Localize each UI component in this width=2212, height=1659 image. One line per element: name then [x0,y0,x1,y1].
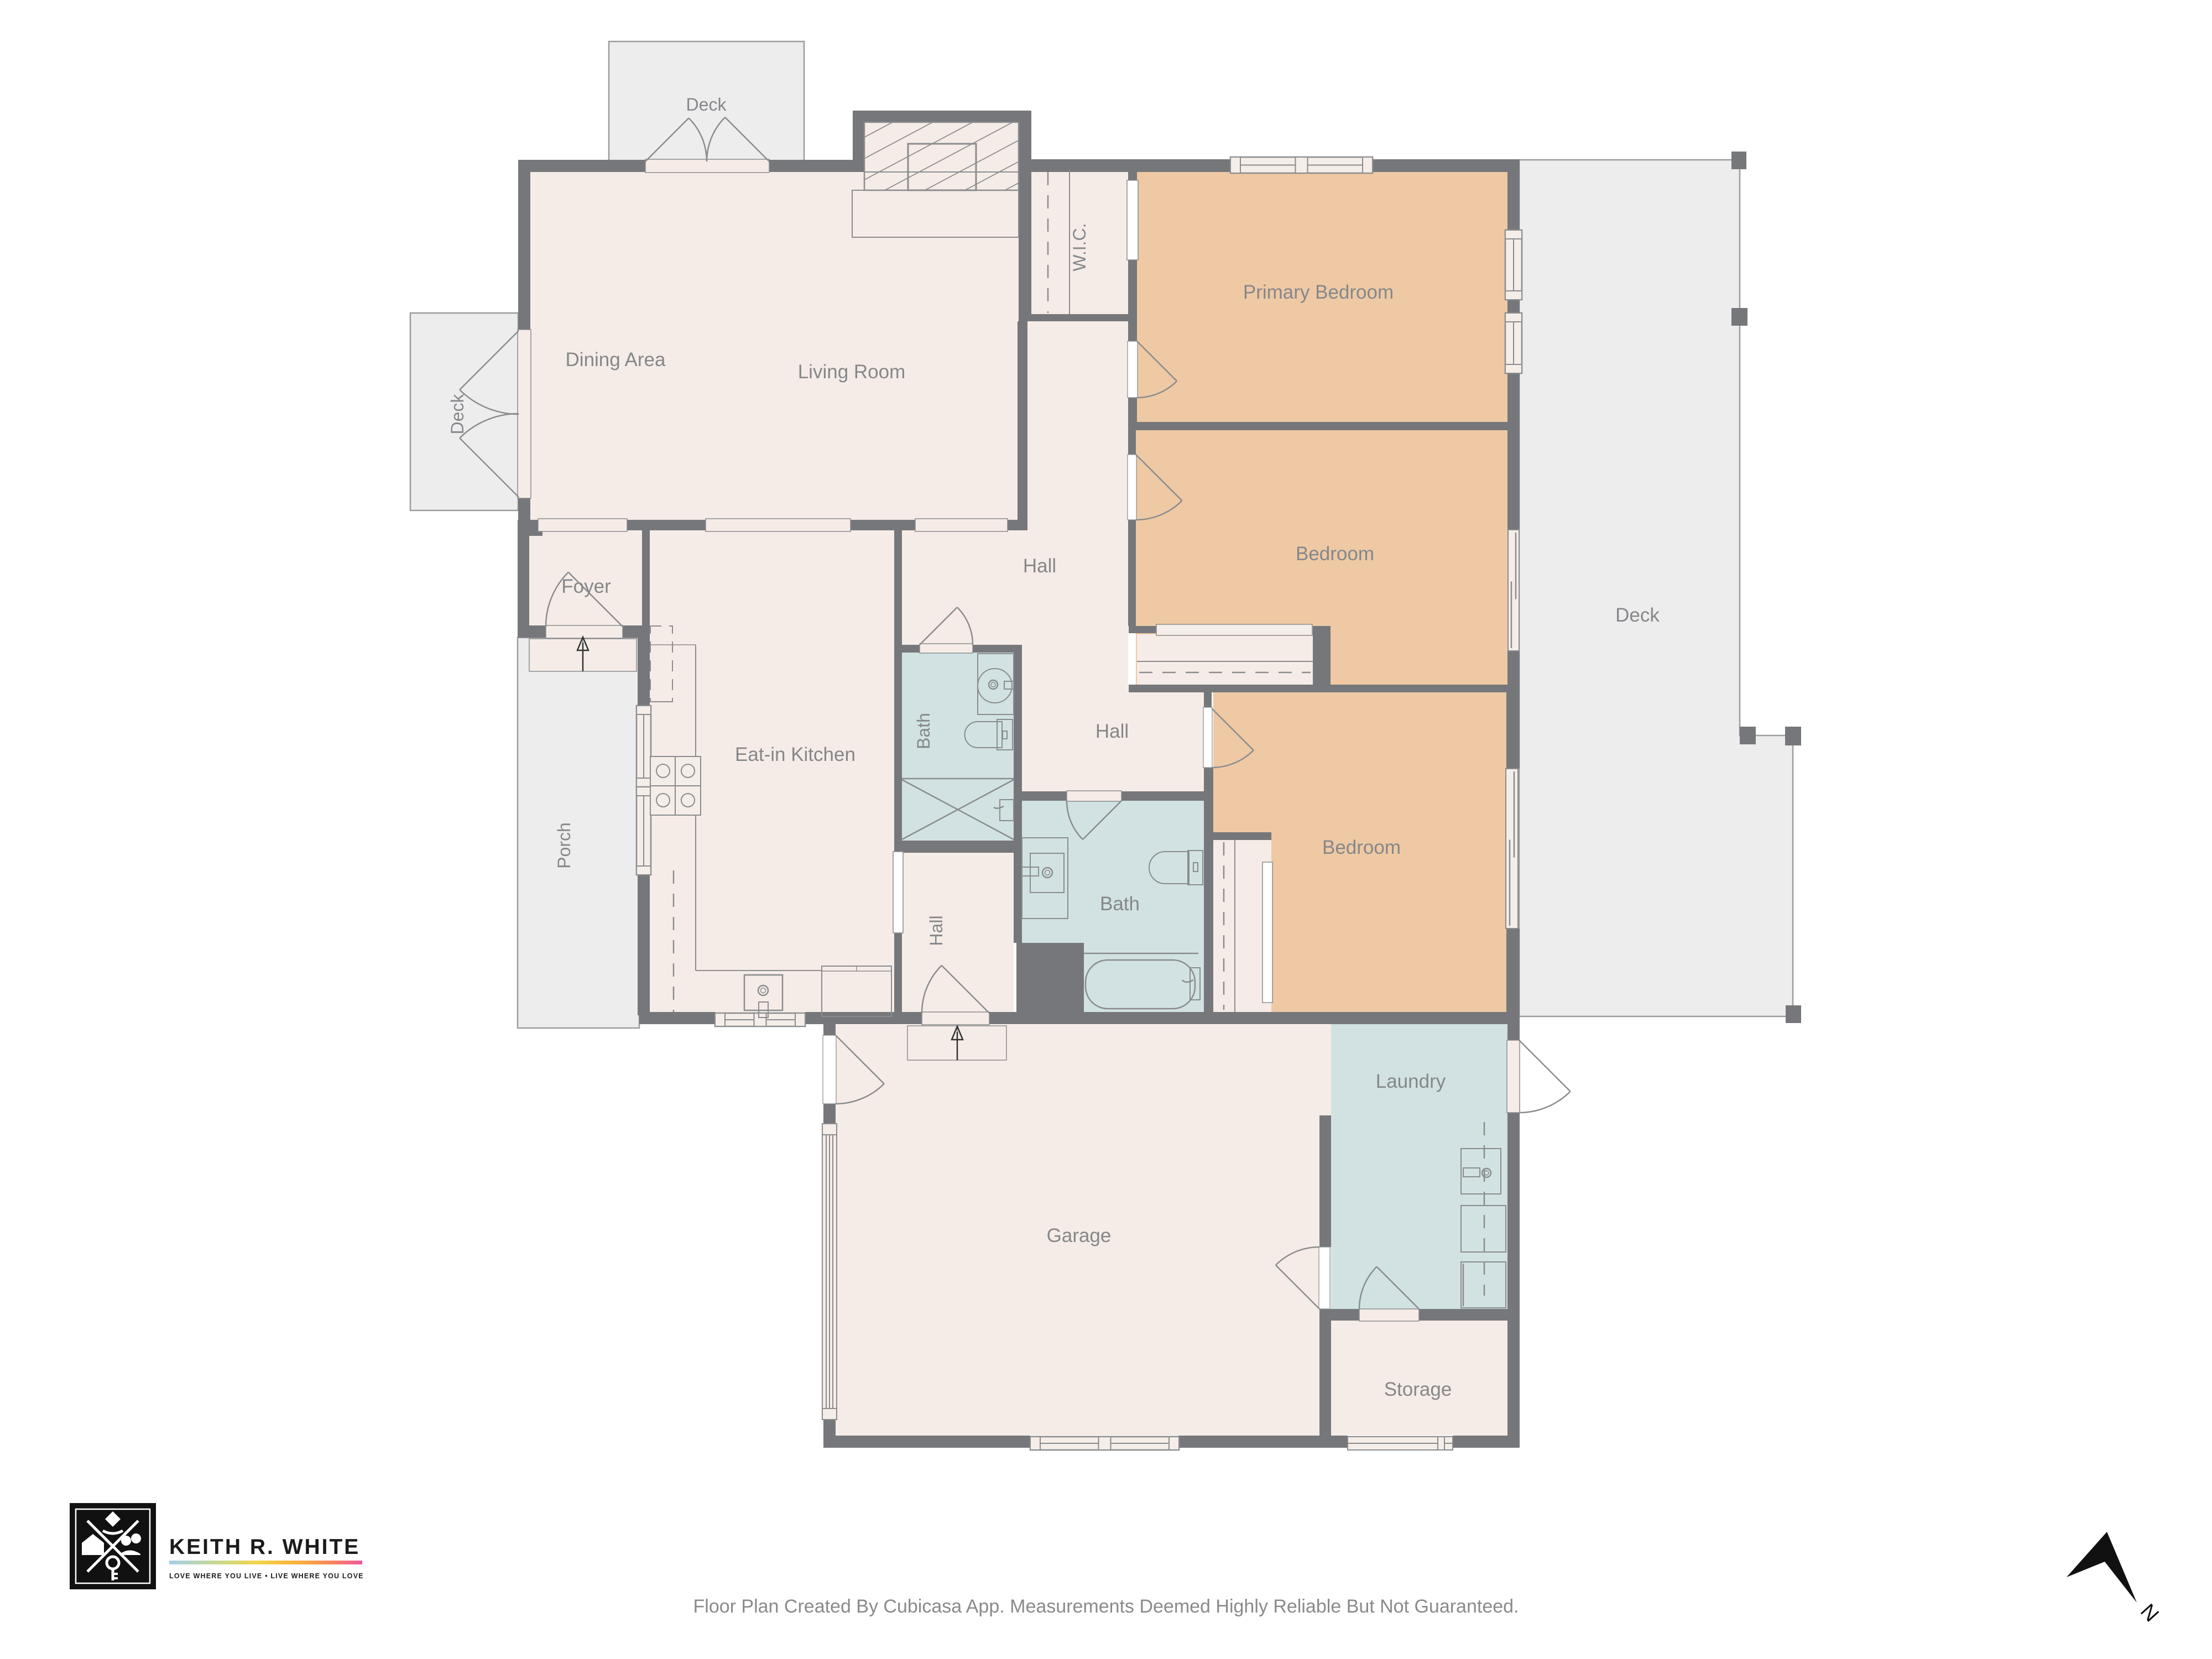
svg-text:Hall: Hall [1095,721,1129,742]
svg-text:Bath: Bath [914,713,933,749]
svg-text:Deck: Deck [447,394,467,435]
svg-text:Bath: Bath [1100,893,1140,915]
svg-text:Bedroom: Bedroom [1296,543,1374,565]
svg-text:W.I.C.: W.I.C. [1070,223,1089,271]
svg-text:Bedroom: Bedroom [1322,837,1401,858]
svg-text:Floor Plan Created By Cubicasa: Floor Plan Created By Cubicasa App. Meas… [693,1596,1519,1617]
svg-text:Foyer: Foyer [561,576,611,597]
svg-text:Hall: Hall [1023,555,1056,577]
svg-text:Storage: Storage [1384,1379,1452,1400]
svg-text:Garage: Garage [1047,1225,1112,1246]
svg-text:Deck: Deck [1615,604,1660,626]
svg-text:Dining Area: Dining Area [566,349,666,371]
svg-text:LOVE WHERE YOU LIVE • LIVE WHE: LOVE WHERE YOU LIVE • LIVE WHERE YOU LOV… [169,1572,364,1580]
svg-text:KEITH R. WHITE: KEITH R. WHITE [169,1535,360,1559]
svg-text:Primary Bedroom: Primary Bedroom [1243,281,1394,303]
svg-text:Eat-in Kitchen: Eat-in Kitchen [735,744,855,765]
svg-text:Porch: Porch [554,822,574,869]
svg-text:Deck: Deck [686,95,727,114]
svg-text:Hall: Hall [926,915,946,946]
svg-text:Laundry: Laundry [1376,1071,1446,1092]
svg-text:Living Room: Living Room [798,361,906,383]
